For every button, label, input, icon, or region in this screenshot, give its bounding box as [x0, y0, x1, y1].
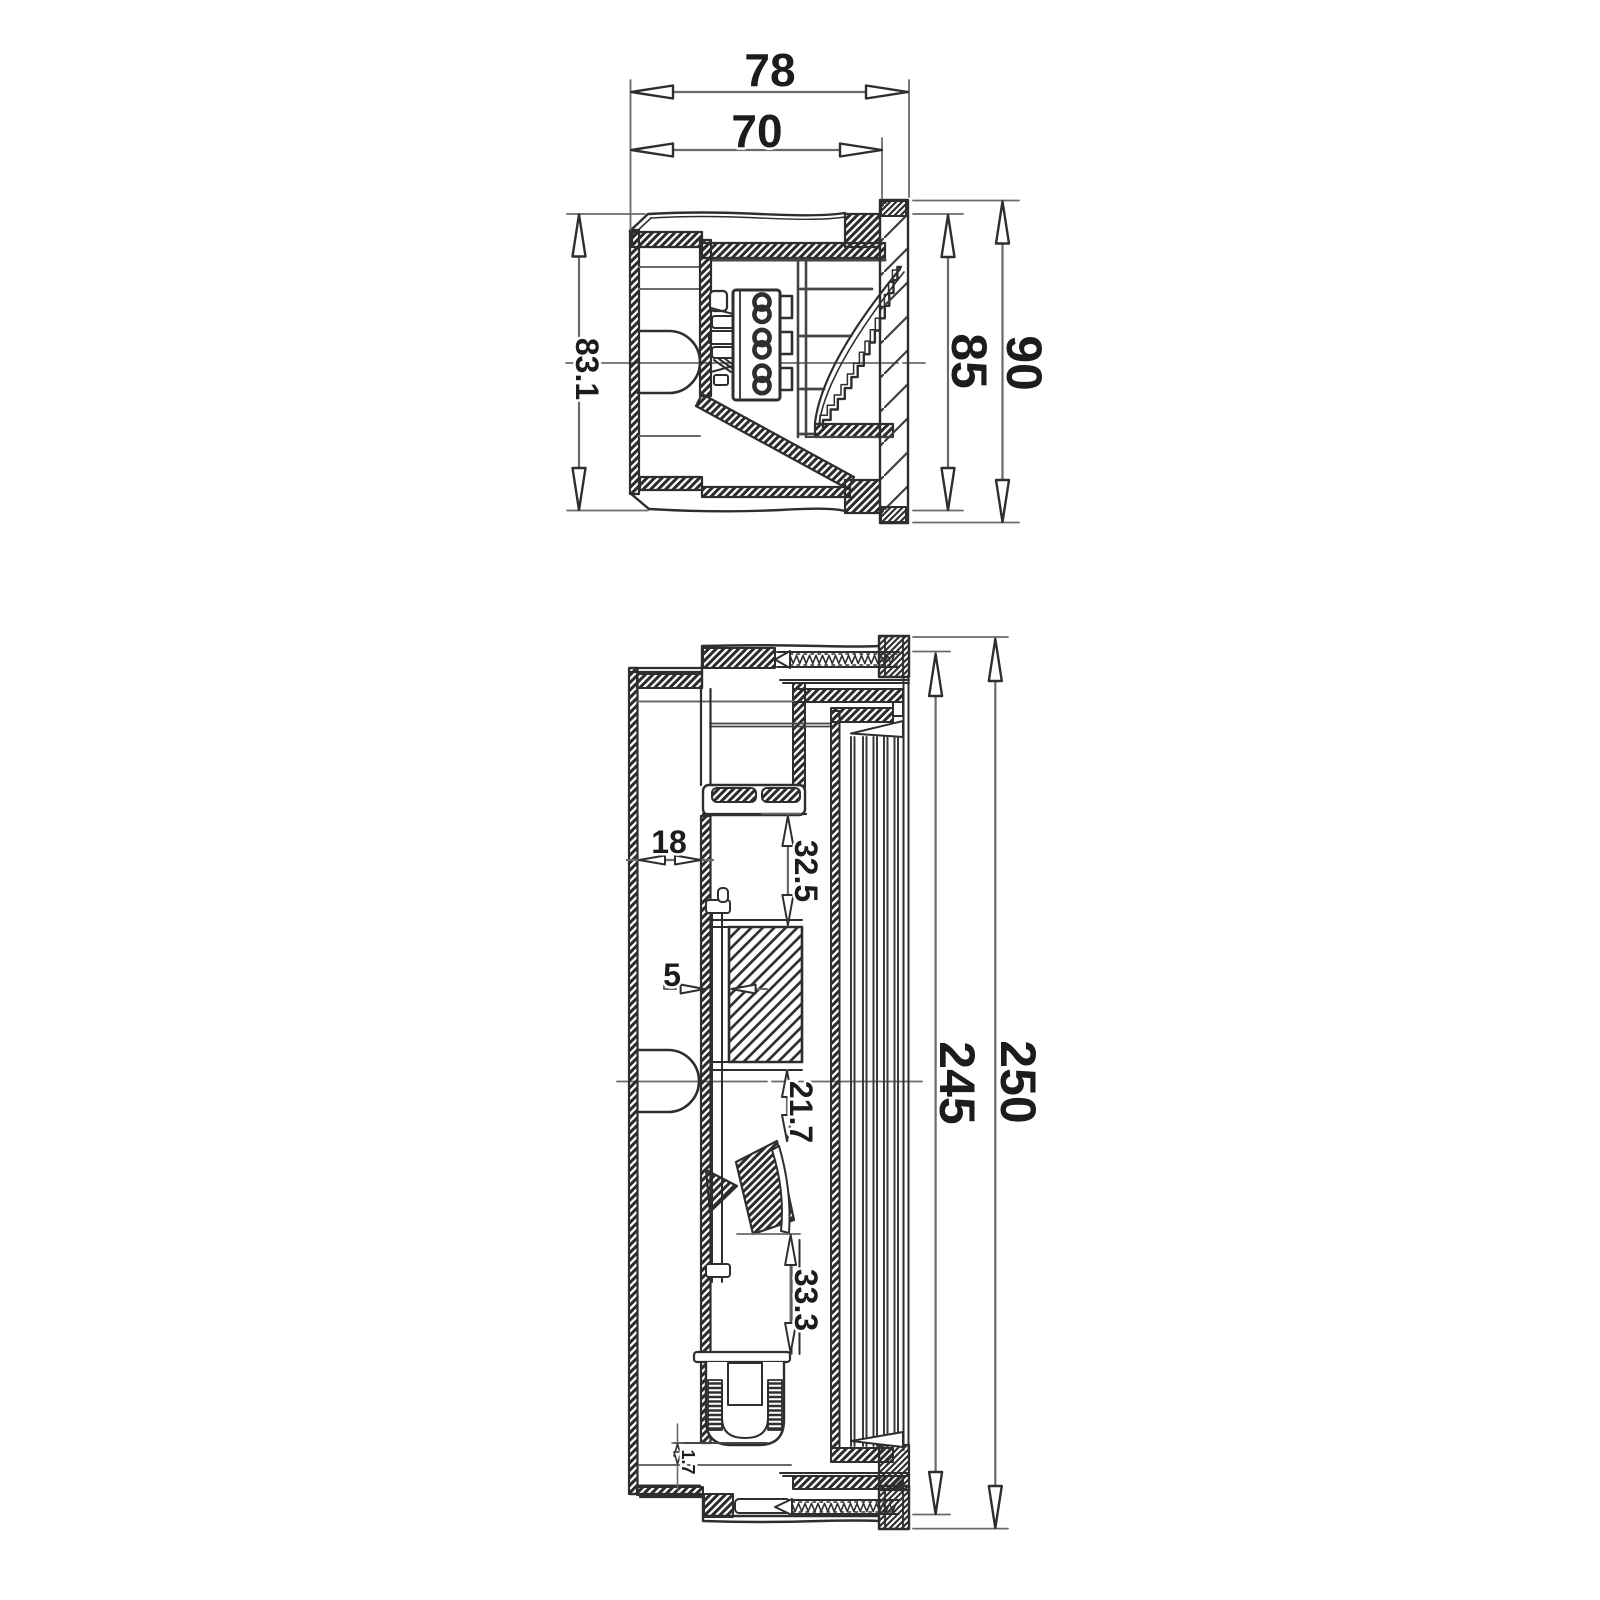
svg-text:78: 78: [744, 44, 795, 96]
svg-text:70: 70: [731, 105, 782, 157]
svg-text:33.3: 33.3: [788, 1269, 824, 1331]
svg-text:5: 5: [663, 957, 681, 993]
svg-text:83.1: 83.1: [569, 338, 605, 400]
svg-text:18: 18: [651, 824, 687, 860]
svg-text:85: 85: [941, 333, 997, 389]
svg-text:32.5: 32.5: [788, 840, 824, 902]
svg-text:245: 245: [929, 1041, 985, 1124]
svg-text:250: 250: [990, 1040, 1046, 1123]
svg-text:21.7: 21.7: [783, 1081, 819, 1143]
svg-text:90: 90: [996, 335, 1052, 391]
svg-text:1.7: 1.7: [678, 1449, 698, 1474]
